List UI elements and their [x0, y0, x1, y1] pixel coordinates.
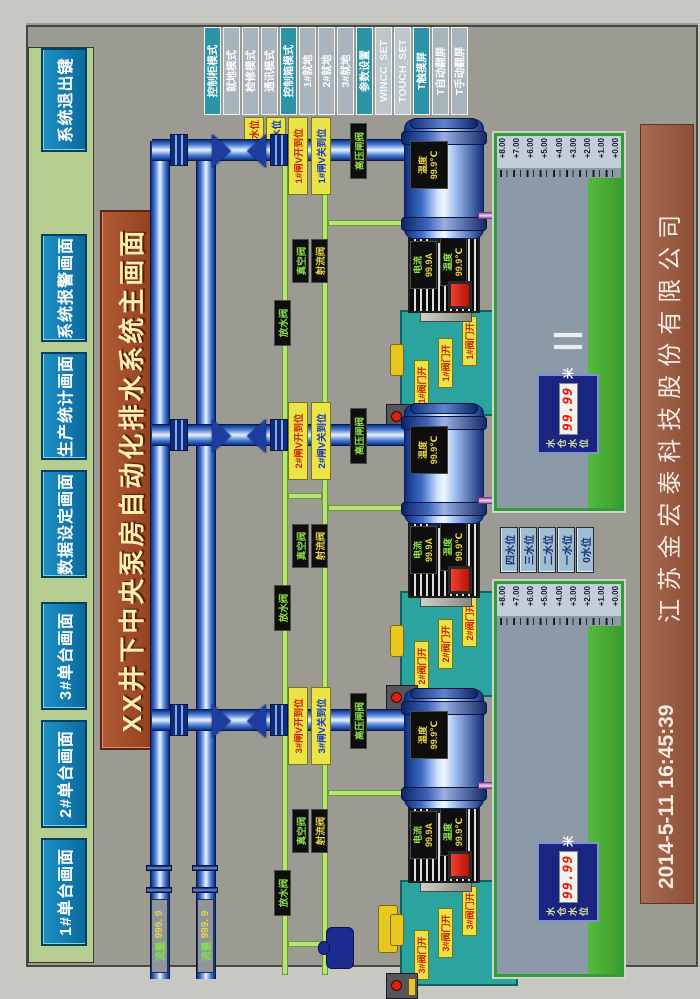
scale-tick-label: +6.00	[526, 586, 535, 614]
pump-temp-indicator-1: 温度 99.9℃	[410, 141, 448, 189]
mode-button-auto-page[interactable]: T自动翻屏	[432, 27, 449, 115]
scale-tick-label: +8.00	[498, 586, 507, 614]
pipe-flange	[170, 419, 188, 451]
scale-tick-label: +6.00	[526, 138, 535, 166]
pump-collar	[401, 502, 487, 516]
nav-strip: 1#单台画面 2#单台画面 3#单台画面 数据设定画面 生产统计画面 系统报警画…	[28, 47, 94, 963]
level-button-3[interactable]: 三水位	[519, 527, 537, 573]
pipe-fitting	[146, 865, 172, 871]
motor-current-indicator-3: 电流 99.9A	[410, 811, 437, 859]
pump-end-cap	[410, 688, 478, 699]
nav-button-data-setting[interactable]: 数据设定画面	[41, 470, 87, 578]
gate-valve-icon-1[interactable]	[212, 134, 231, 168]
temp-value: 99.9℃	[454, 248, 465, 276]
level-unit: 米	[560, 368, 576, 379]
gauge-label-line2: 水位	[568, 907, 590, 916]
nav-button-system-alarm[interactable]: 系统报警画面	[41, 234, 87, 342]
screenshot: 1#单台画面 2#单台画面 3#单台画面 数据设定画面 生产统计画面 系统报警画…	[0, 0, 700, 999]
temp-label: 温度	[418, 441, 429, 459]
jet-pump-icon	[326, 927, 354, 969]
gate-valve-icon-2[interactable]	[212, 419, 231, 453]
mode-button-local-3[interactable]: 3#就地	[337, 27, 354, 115]
mode-button-maintenance[interactable]: 检修模式	[242, 27, 259, 115]
scale-tick-label: +0.00	[611, 138, 620, 166]
scale-tick-label: +2.00	[583, 138, 592, 166]
motor-status-lamp-1	[448, 281, 472, 309]
flow-meter-1: 流量 999. 9	[151, 899, 168, 973]
level-button-0[interactable]: 0水位	[576, 527, 594, 573]
valve-open-indicator-1: 1#闸V开到位	[288, 117, 308, 195]
scale-tick-label: +4.00	[555, 138, 564, 166]
aux-line-a	[282, 141, 288, 975]
datetime: 2014-5-11 16:45:39	[655, 705, 679, 889]
nav-button-unit3[interactable]: 3#单台画面	[41, 602, 87, 710]
valve-open-indicator-2: 2#闸V开到位	[288, 402, 308, 480]
gauge-label-line2: 水位	[568, 439, 590, 448]
sump-ladder	[553, 344, 583, 350]
nav-button-unit1[interactable]: 1#单台画面	[41, 838, 87, 946]
temp-label: 温度	[443, 538, 454, 556]
temp-value: 99.9℃	[429, 436, 440, 464]
level-button-4[interactable]: 四水位	[500, 527, 518, 573]
temp-label: 温度	[418, 156, 429, 174]
sump-right: +8.00 +7.00 +6.00 +5.00 +4.00 +3.00 +2.0…	[494, 133, 624, 511]
discharge-header-1	[150, 141, 170, 979]
scale-tick-label: +3.00	[569, 138, 578, 166]
pump-end-cap	[410, 403, 478, 414]
aux-drop-3	[328, 790, 406, 796]
scale-tick-label: +4.00	[555, 586, 564, 614]
flow-value: 999. 9	[154, 911, 165, 939]
sump-water	[588, 178, 621, 508]
valve-open-indicator-3: 3#闸V开到位	[288, 687, 308, 765]
pipe-flange	[270, 134, 288, 166]
mode-button-comms[interactable]: 通讯模式	[261, 27, 278, 115]
mode-button-touch-set[interactable]: TOUCH_SET	[394, 27, 411, 115]
motor-status-lamp-3	[448, 851, 472, 879]
level-ticks	[500, 618, 618, 625]
mode-button-param-set[interactable]: 参数设置	[356, 27, 373, 115]
mode-button-touchscreen[interactable]: T触摸屏	[413, 27, 430, 115]
level-value: 99.99	[559, 851, 578, 903]
hydraulic-pump-icon	[390, 344, 404, 376]
company-name: 江苏金宏泰科技股份有限公司	[650, 125, 685, 705]
scale-tick-label: +7.00	[512, 138, 521, 166]
level-ticks	[500, 170, 618, 177]
gate-valve-icon-3[interactable]	[247, 704, 266, 738]
hydraulic-device-icon	[386, 973, 418, 999]
pump-collar	[401, 217, 487, 231]
flow-value: 999. 9	[200, 911, 211, 939]
sump-ladder	[553, 332, 583, 338]
motor-temp-indicator-1: 温度 99.9℃	[440, 238, 467, 286]
hp-gate-valve-label-2: 高压闸阀	[350, 408, 367, 464]
jet-pump-stub	[318, 941, 330, 955]
mode-button-control-box[interactable]: 控制箱模式	[280, 27, 297, 115]
pipe-flange	[170, 134, 188, 166]
aux-drop-1	[328, 220, 406, 226]
gauge-label: 水仓 水位	[546, 439, 590, 448]
level-value: 99.99	[559, 383, 578, 435]
valve-closed-indicator-3: 3#闸V关到位	[311, 687, 331, 765]
drain-valve-label-1: 放水阀	[274, 300, 291, 346]
level-button-2[interactable]: 二水位	[538, 527, 556, 573]
gauge-label-line1: 水仓	[546, 439, 568, 448]
scale-tick-label: +1.00	[597, 138, 606, 166]
level-unit: 米	[560, 836, 576, 847]
jet-valve-label-2: 射流阀	[311, 524, 328, 568]
mode-button-wincc-set[interactable]: WINCC_SET	[375, 27, 392, 115]
mode-button-cabinet[interactable]: 控制柜模式	[204, 27, 221, 115]
pump-end-cap	[410, 118, 478, 129]
gauge-label-line1: 水仓	[546, 907, 568, 916]
scale-tick-label: +8.00	[498, 138, 507, 166]
level-scale: +8.00 +7.00 +6.00 +5.00 +4.00 +3.00 +2.0…	[497, 584, 621, 616]
nav-button-production-stats[interactable]: 生产统计画面	[41, 352, 87, 460]
aux-connector	[288, 941, 322, 947]
hydraulic-valve-indicator: 2#阀门开	[438, 619, 453, 669]
motor-temp-indicator-2: 温度 99.9℃	[440, 523, 467, 571]
hydraulic-valve-indicator: 3#阀门开	[438, 908, 453, 958]
motor-temp-indicator-3: 温度 99.9℃	[440, 808, 467, 856]
motor-current-indicator-1: 电流 99.9A	[410, 241, 437, 289]
hydraulic-pump-icon	[390, 914, 404, 946]
hydraulic-pump-icon	[390, 625, 404, 657]
pipe-fitting	[192, 865, 218, 871]
flow-label: 流量	[198, 941, 213, 961]
pump-collar	[401, 787, 487, 801]
pipe-flange	[270, 419, 288, 451]
scale-tick-label: +7.00	[512, 586, 521, 614]
temp-label: 温度	[443, 253, 454, 271]
current-value: 99.9A	[424, 823, 435, 847]
temp-value: 99.9℃	[454, 533, 465, 561]
vacuum-valve-label-3: 真空阀	[292, 809, 309, 853]
pipe-flange	[170, 704, 188, 736]
hp-gate-valve-label-3: 高压闸阀	[350, 693, 367, 749]
mode-button-local-1[interactable]: 1#就地	[299, 27, 316, 115]
level-button-1[interactable]: 一水位	[557, 527, 575, 573]
sump-left: +8.00 +7.00 +6.00 +5.00 +4.00 +3.00 +2.0…	[494, 581, 624, 977]
pipe-fitting	[192, 887, 218, 893]
hydraulic-valve-indicator: 1#阀门开	[462, 316, 477, 366]
level-scale: +8.00 +7.00 +6.00 +5.00 +4.00 +3.00 +2.0…	[497, 136, 621, 168]
sump-level-gauge-left: 水仓 水位 99.99 米	[537, 842, 599, 922]
current-label: 电流	[413, 826, 424, 844]
motor-current-indicator-2: 电流 99.9A	[410, 526, 437, 574]
scale-tick-label: +0.00	[611, 586, 620, 614]
current-value: 99.9A	[424, 538, 435, 562]
valve-closed-indicator-1: 1#闸V关到位	[311, 117, 331, 195]
mode-button-manual-page[interactable]: T手动翻屏	[451, 27, 468, 115]
hydraulic-valve-indicator: 2#阀门开	[414, 641, 429, 691]
hp-gate-valve-label-1: 高压闸阀	[350, 123, 367, 179]
mode-button-column: 控制柜模式 就地模式 检修模式 通讯模式 控制箱模式 1#就地 2#就地 3#就…	[204, 25, 472, 115]
discharge-header-2	[196, 141, 216, 979]
mode-button-local-2[interactable]: 2#就地	[318, 27, 335, 115]
frame-right	[0, 0, 700, 23]
gate-valve-icon-1[interactable]	[247, 134, 266, 168]
scale-tick-label: +3.00	[569, 586, 578, 614]
drain-valve-label-2: 放水阀	[274, 585, 291, 631]
pump-temp-indicator-3: 温度 99.9℃	[410, 711, 448, 759]
frame-top	[0, 0, 26, 999]
temp-label: 温度	[418, 726, 429, 744]
pipe-fitting	[146, 887, 172, 893]
hmi-main-screen: 1#单台画面 2#单台画面 3#单台画面 数据设定画面 生产统计画面 系统报警画…	[0, 0, 700, 999]
scale-tick-label: +1.00	[597, 586, 606, 614]
gauge-label: 水仓 水位	[546, 907, 590, 916]
motor-status-lamp-2	[448, 566, 472, 594]
vacuum-valve-label-1: 真空阀	[292, 239, 309, 283]
jet-valve-label-3: 射流阀	[311, 809, 328, 853]
current-label: 电流	[413, 541, 424, 559]
nav-button-unit2[interactable]: 2#单台画面	[41, 720, 87, 828]
gate-valve-icon-3[interactable]	[212, 704, 231, 738]
temp-value: 99.9℃	[429, 151, 440, 179]
temp-value: 99.9℃	[429, 721, 440, 749]
gate-valve-icon-2[interactable]	[247, 419, 266, 453]
sump-level-gauge-right: 水仓 水位 99.99 米	[537, 374, 599, 454]
drain-valve-label-3: 放水阀	[274, 870, 291, 916]
footer-strip: 2014-5-11 16:45:39 江苏金宏泰科技股份有限公司	[640, 124, 694, 904]
temp-label: 温度	[443, 823, 454, 841]
aux-connector	[288, 493, 322, 499]
hydraulic-valve-indicator: 1#阀门开	[438, 338, 453, 388]
nav-button-system-exit[interactable]: 系统退出键	[41, 48, 87, 152]
current-label: 电流	[413, 256, 424, 274]
mode-button-local[interactable]: 就地模式	[223, 27, 240, 115]
temp-value: 99.9℃	[454, 818, 465, 846]
pump-temp-indicator-2: 温度 99.9℃	[410, 426, 448, 474]
flow-meter-2: 流量 999. 9	[197, 899, 214, 973]
scale-tick-label: +5.00	[540, 586, 549, 614]
aux-drop-2	[328, 505, 406, 511]
vacuum-valve-label-2: 真空阀	[292, 524, 309, 568]
flow-label: 流量	[152, 941, 167, 961]
current-value: 99.9A	[424, 253, 435, 277]
valve-closed-indicator-2: 2#闸V关到位	[311, 402, 331, 480]
pipe-flange	[270, 704, 288, 736]
hydraulic-valve-indicator: 3#阀门开	[462, 886, 477, 936]
jet-valve-label-1: 射流阀	[311, 239, 328, 283]
scale-tick-label: +5.00	[540, 138, 549, 166]
scale-tick-label: +2.00	[583, 586, 592, 614]
